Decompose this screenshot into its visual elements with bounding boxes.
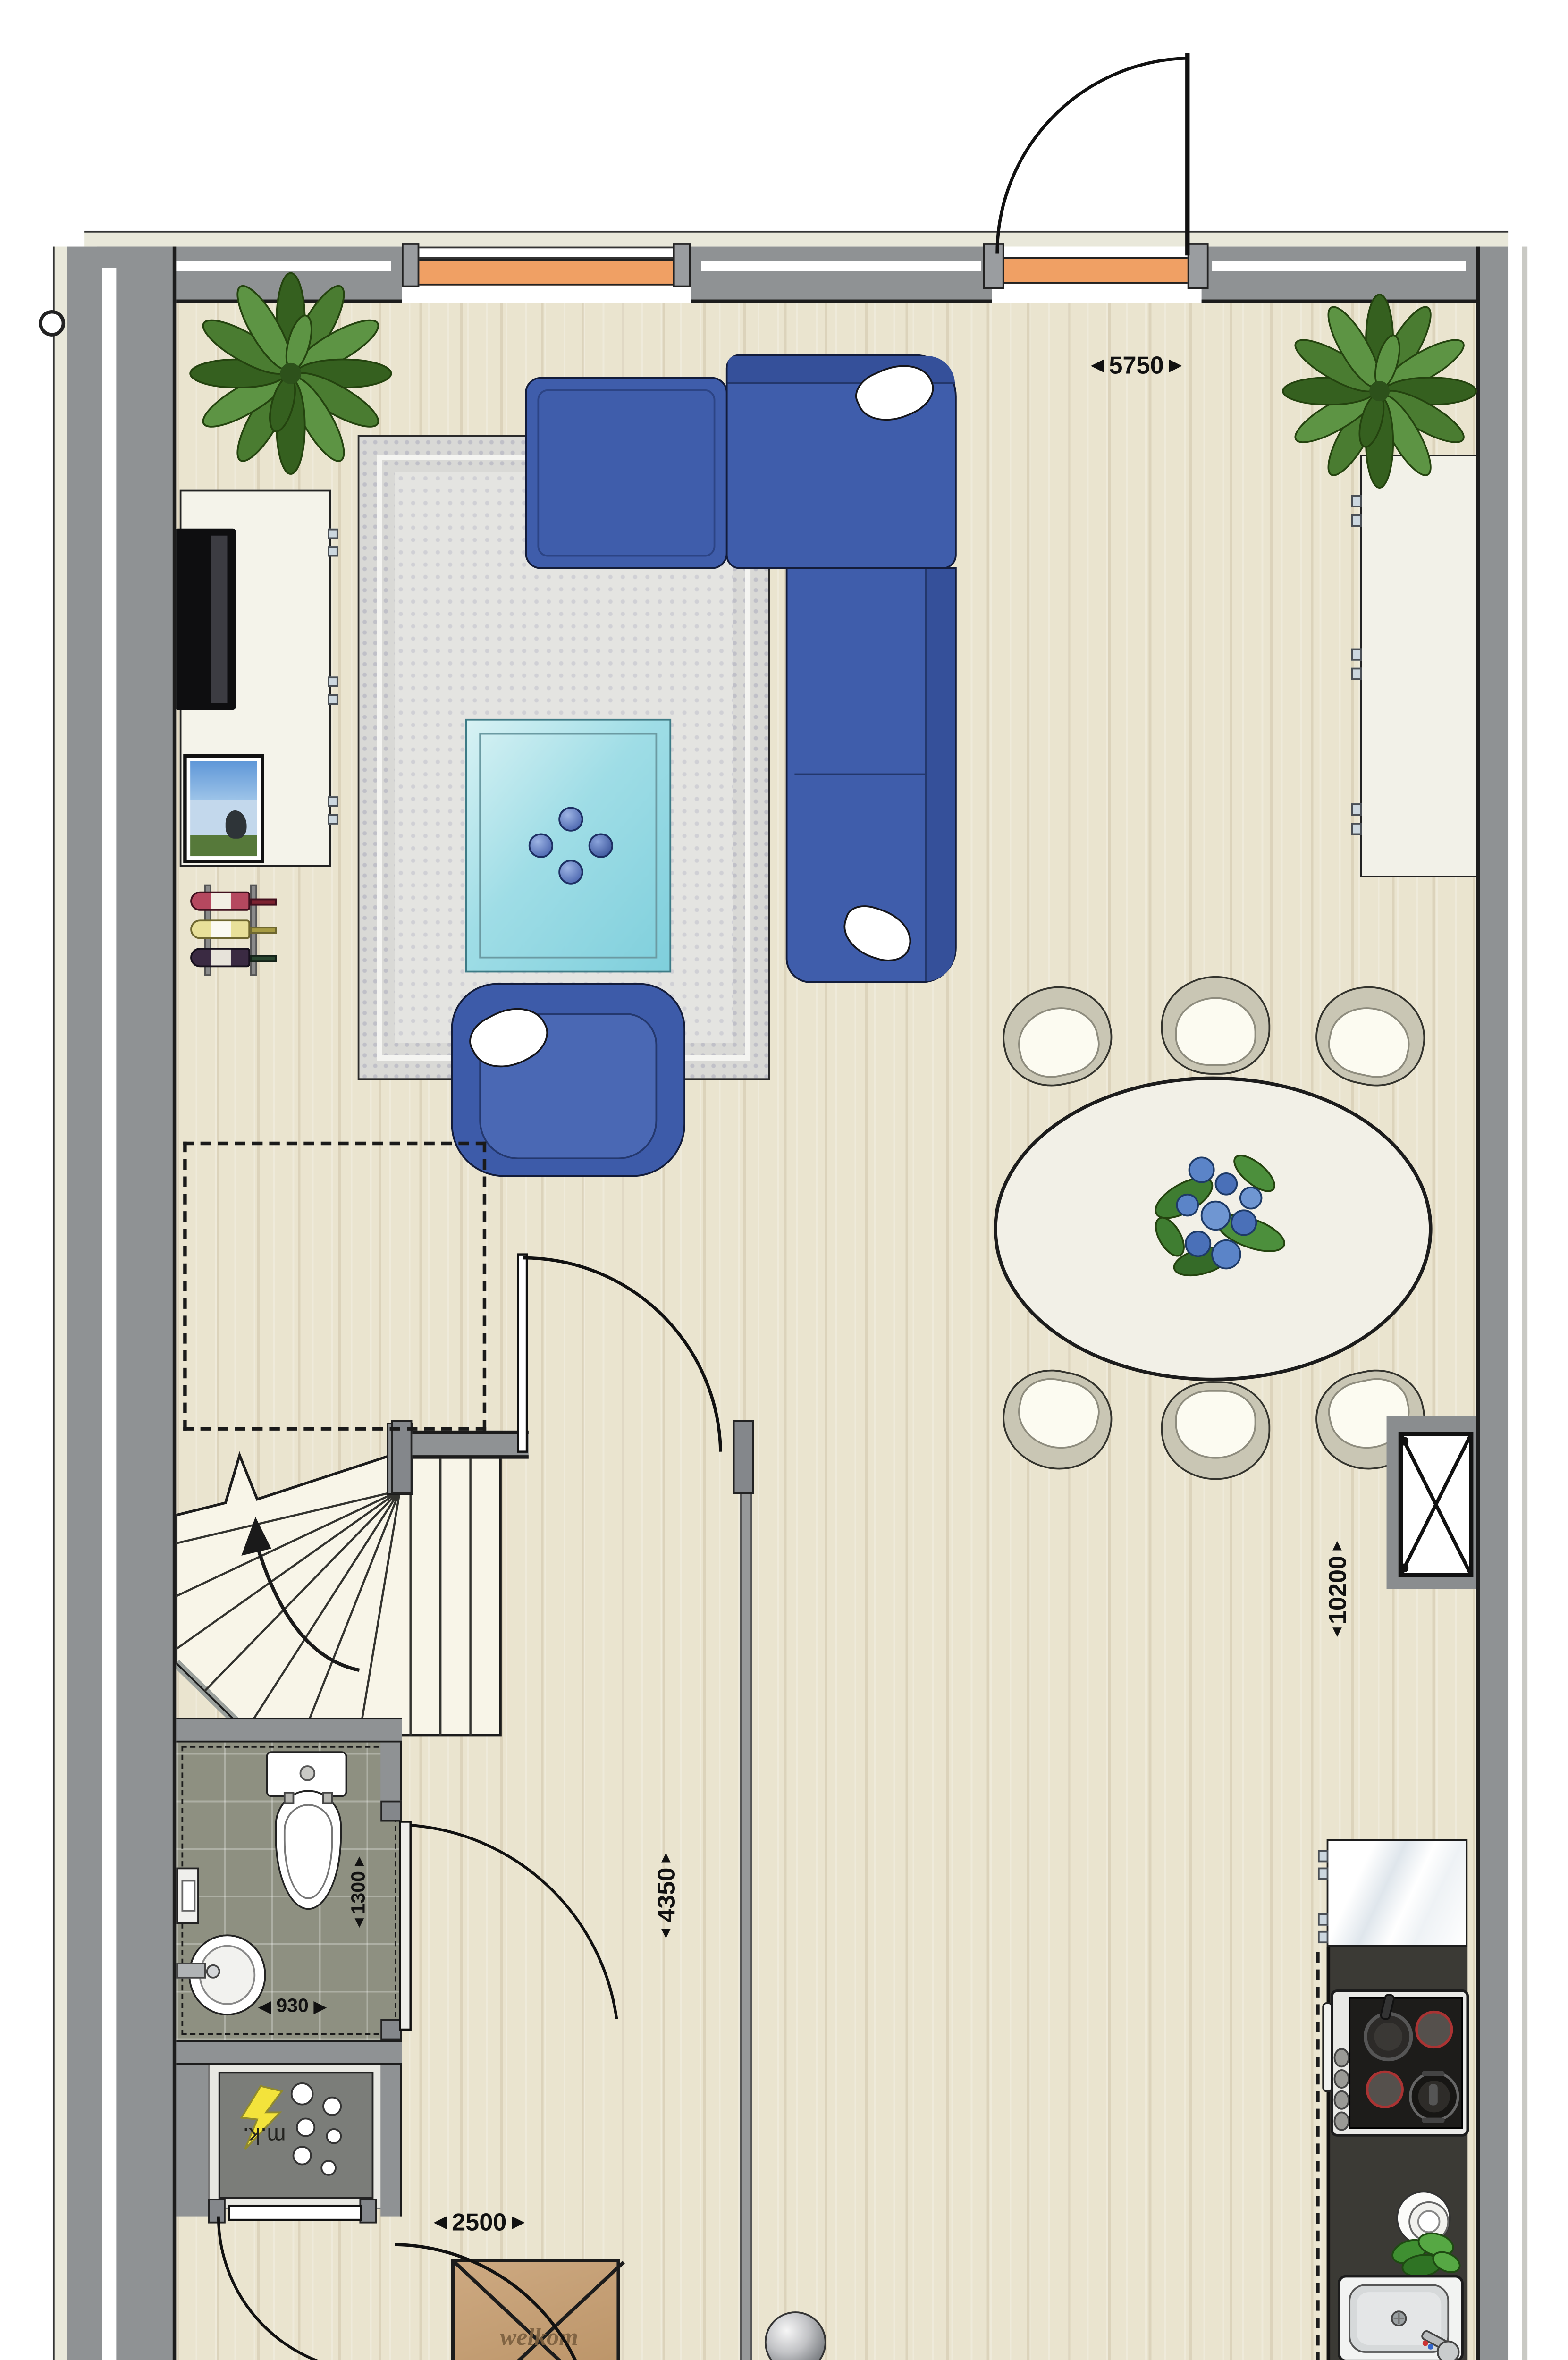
sofa-seat-split	[794, 774, 925, 775]
meter-cupboard-label: m.k.	[226, 2121, 303, 2149]
arrow-up-icon: ▲	[1329, 1537, 1345, 1553]
door-frame-block	[983, 243, 1004, 289]
picture-haze	[190, 800, 257, 835]
candle	[558, 860, 583, 885]
mk-wall-right	[380, 2065, 402, 2217]
picture-field	[190, 835, 257, 856]
arrow-right-icon: ▶	[1169, 357, 1181, 373]
arrow-left-icon: ◀	[434, 2214, 447, 2230]
vide-dashed-outline	[183, 1142, 486, 1431]
basin-tap-knob	[206, 1964, 220, 1979]
paper-roll	[181, 1880, 195, 1912]
arrow-up-icon: ▲	[352, 1853, 367, 1869]
wall-top	[691, 247, 992, 303]
facade-left	[53, 247, 67, 2360]
stove	[1323, 1991, 1467, 2135]
toilet-paper-holder	[176, 1868, 199, 1924]
picture-sky	[190, 761, 257, 800]
mk-wall-left	[176, 2065, 208, 2217]
sink	[1339, 2276, 1462, 2360]
coffee-table-frame	[479, 733, 657, 959]
dining-chair	[1161, 976, 1270, 1075]
cavity-line	[701, 261, 981, 271]
bottle-label	[211, 950, 231, 966]
sideboard	[1360, 455, 1476, 877]
divider-wall-stub	[740, 1494, 752, 2360]
cavity-line	[102, 268, 116, 2360]
wall-top	[1202, 247, 1476, 303]
picture-frame	[183, 754, 264, 863]
door-post	[733, 1420, 754, 1494]
window-top-sill	[402, 259, 691, 286]
cavity-line	[1212, 261, 1466, 271]
facade-top	[84, 231, 1508, 247]
coffee-table	[465, 719, 671, 972]
fuse-circle	[291, 2082, 314, 2106]
flower-bouquet	[1149, 1145, 1297, 1300]
window-top	[402, 247, 691, 259]
toilet-seat-line	[284, 1804, 333, 1899]
fuse-circle	[326, 2128, 342, 2144]
sideboard-handle	[1351, 495, 1362, 507]
sideboard-handle	[1351, 514, 1362, 527]
tv-screen-edge	[211, 536, 228, 703]
tv	[175, 529, 236, 710]
door-post	[380, 1801, 402, 1822]
cabinet-handle	[328, 546, 338, 556]
entrance-sill	[997, 257, 1195, 284]
door-post	[359, 2199, 377, 2223]
arrow-up-icon: ▲	[658, 1851, 674, 1867]
toilet-wall-top	[176, 1718, 402, 1742]
plant-top-right-icon	[1291, 303, 1467, 479]
cavity-line	[1508, 247, 1522, 2360]
sideboard-handle	[1351, 803, 1362, 816]
window-frame-block	[673, 243, 691, 287]
wine-rack	[190, 885, 282, 976]
staircase	[173, 1420, 507, 1740]
floor-plan: welkom	[0, 0, 1568, 2360]
cabinet-handle	[328, 814, 338, 824]
wall-left	[67, 247, 176, 2360]
sofa-cushion-line	[537, 389, 715, 557]
window-frame-block	[402, 243, 419, 287]
arrow-right-icon: ▶	[512, 2214, 524, 2230]
shaft-box	[1397, 1431, 1475, 1579]
sideboard-handle	[1351, 649, 1362, 661]
entrance-opening	[997, 247, 1195, 257]
sideboard-handle	[1351, 668, 1362, 680]
sideboard-handle	[1351, 823, 1362, 835]
dim-right-depth: ▲ 10200 ▼	[1311, 1498, 1364, 1681]
entrance-door-arc	[997, 58, 1188, 253]
candle	[558, 807, 583, 832]
dim-top-width: ◀ 5750 ▶	[1045, 349, 1228, 380]
door-post	[391, 1420, 413, 1494]
toilet-seat-hinge	[284, 1792, 294, 1804]
bottle-label	[211, 921, 231, 937]
arrow-right-icon: ▶	[314, 1999, 326, 2015]
cabinet-handle	[328, 529, 338, 539]
doormat-text: welkom	[455, 2326, 624, 2354]
dim-hall-depth: ▲ 4350 ▼	[640, 1822, 692, 1970]
candle	[589, 834, 613, 858]
hall-wall	[412, 1431, 528, 1459]
arrow-left-icon: ◀	[259, 1999, 271, 2015]
door-frame-block	[1188, 243, 1209, 289]
dim-toilet-width: ◀ 930 ▶	[219, 1994, 367, 2019]
arrow-left-icon: ◀	[1091, 357, 1104, 373]
facade-right	[1522, 247, 1527, 2360]
dining-chair	[1161, 1381, 1270, 1480]
vent-symbol	[39, 310, 65, 337]
bottle-neck	[250, 898, 277, 905]
dim-toilet-depth: ▲ 1300 ▼	[338, 1822, 381, 1963]
sofa-backrest-right	[925, 569, 955, 981]
bottle-label	[211, 893, 231, 909]
cabinet-handle	[328, 694, 338, 705]
door-post	[380, 2019, 402, 2040]
fuse-circle	[322, 2097, 342, 2116]
flush-button	[300, 1765, 316, 1781]
fuse-circle	[320, 2160, 337, 2176]
toilet-wall-bottom	[176, 2040, 402, 2065]
bottle-neck	[250, 954, 277, 961]
bottle-neck	[250, 926, 277, 933]
arrow-down-icon: ▼	[658, 1925, 674, 1941]
wall-right	[1476, 247, 1508, 2360]
candle	[529, 834, 553, 858]
toilet-seat-hinge	[322, 1792, 333, 1804]
cabinet-handle	[328, 796, 338, 807]
arrow-down-icon: ▼	[352, 1915, 367, 1931]
doormat: welkom	[451, 2259, 620, 2360]
toilet-room: ▲ 1300 ▼ ◀ 930 ▶	[176, 1741, 402, 2040]
herb-plant-icon	[1389, 2230, 1463, 2279]
door-post	[208, 2199, 225, 2223]
basin-tap	[176, 1963, 206, 1979]
dim-entry-width: ◀ 2500 ▶	[388, 2206, 571, 2237]
arrow-down-icon: ▼	[1329, 1625, 1345, 1641]
cabinet-handle	[328, 676, 338, 687]
sofa-chaise	[525, 377, 727, 569]
plant-top-left-icon	[199, 282, 382, 465]
